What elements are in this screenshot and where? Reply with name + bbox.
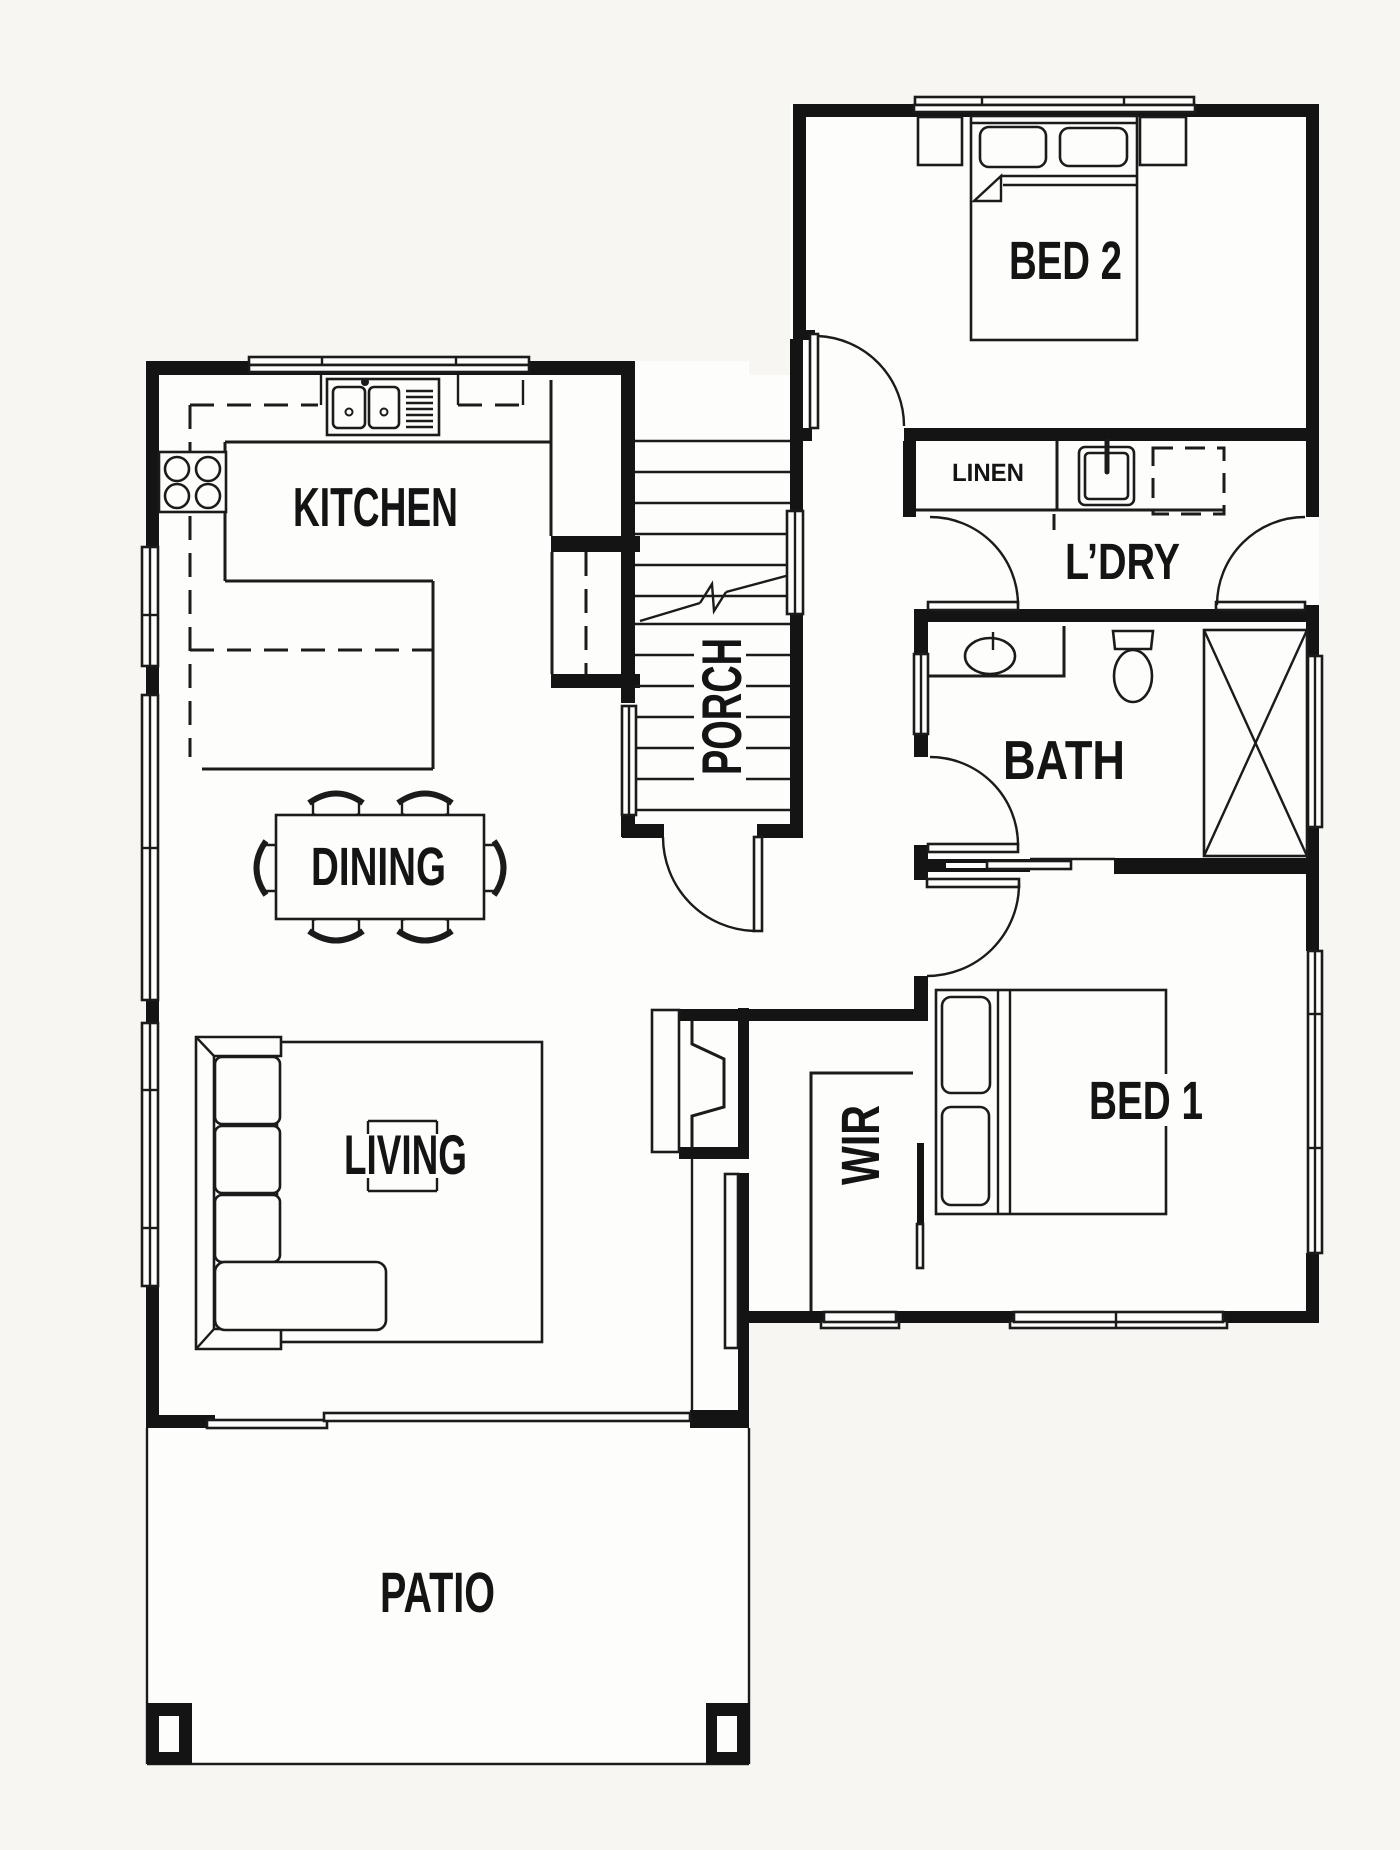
svg-text:LIVING: LIVING bbox=[344, 1123, 467, 1186]
svg-text:L’DRY: L’DRY bbox=[1065, 533, 1180, 590]
svg-text:DINING: DINING bbox=[311, 837, 446, 897]
svg-text:PATIO: PATIO bbox=[380, 1561, 495, 1625]
svg-text:PORCH: PORCH bbox=[690, 638, 753, 775]
svg-text:BATH: BATH bbox=[1003, 729, 1125, 791]
svg-text:LINEN: LINEN bbox=[952, 459, 1024, 487]
svg-text:KITCHEN: KITCHEN bbox=[293, 476, 458, 538]
svg-text:BED 2: BED 2 bbox=[1009, 231, 1122, 291]
svg-text:WIR: WIR bbox=[831, 1105, 891, 1185]
svg-text:BED 1: BED 1 bbox=[1089, 1071, 1203, 1131]
